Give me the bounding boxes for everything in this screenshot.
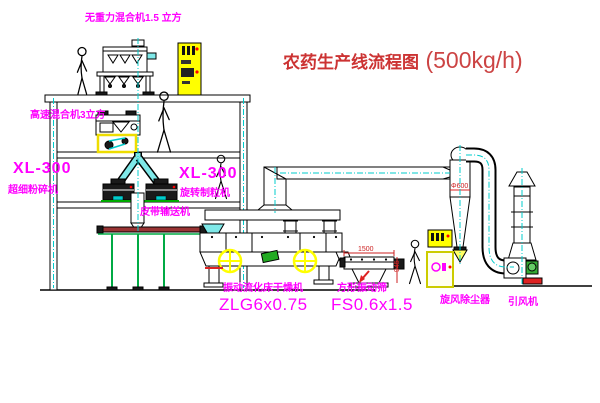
ground-line: [40, 286, 592, 290]
label-granulator-model: XL-300: [179, 165, 237, 183]
vibration-motor-right: [294, 250, 316, 272]
label-high-speed-mixer: 高速混合机3立方: [30, 111, 106, 121]
label-pulverizer-model: XL-300: [13, 160, 71, 178]
label-screen-name: 方形振动筛: [337, 284, 387, 294]
label-screen-model: FS0.6x1.5: [331, 295, 413, 315]
granulator-right: [143, 179, 179, 201]
person-roof: [77, 48, 86, 95]
label-pulverizer-name: 超细粉碎机: [8, 186, 58, 196]
label-dryer-name: 振动流化床干燥机: [223, 284, 303, 294]
label-gravity-mixer: 无重力混合机1.5 立方: [85, 14, 182, 24]
belt-conveyor: [97, 226, 206, 290]
page-title: 农药生产线流程图 (500kg/h): [283, 47, 523, 74]
dimension-945: 945: [394, 257, 401, 283]
title-capacity: (500kg/h): [425, 47, 522, 73]
label-belt-conveyor: 皮带输送机: [140, 208, 190, 218]
svg-text:1500: 1500: [358, 246, 374, 253]
fluid-bed-dryer: [200, 210, 352, 287]
dimension-1500: 1500: [344, 246, 394, 256]
induced-fan: [504, 258, 542, 284]
diagram-canvas: 1500 945 Φ600 农药生产线流程图 (500: [0, 0, 600, 403]
label-cyclone: 旋风除尘器: [440, 296, 490, 306]
label-granulator-name: 旋转制粒机: [180, 189, 230, 199]
label-dryer-model: ZLG6x0.75: [219, 295, 308, 315]
gravity-mixer: [96, 40, 156, 95]
return-duct: [466, 155, 514, 267]
svg-text:945: 945: [394, 260, 401, 272]
control-cabinet-right: [427, 230, 453, 287]
control-cabinet-top: [178, 43, 201, 95]
vibrating-screen: 1500 945: [340, 246, 404, 287]
title-text: 农药生产线流程图: [283, 53, 419, 72]
person-ground: [410, 240, 421, 283]
label-induced-fan: 引风机: [508, 298, 538, 308]
